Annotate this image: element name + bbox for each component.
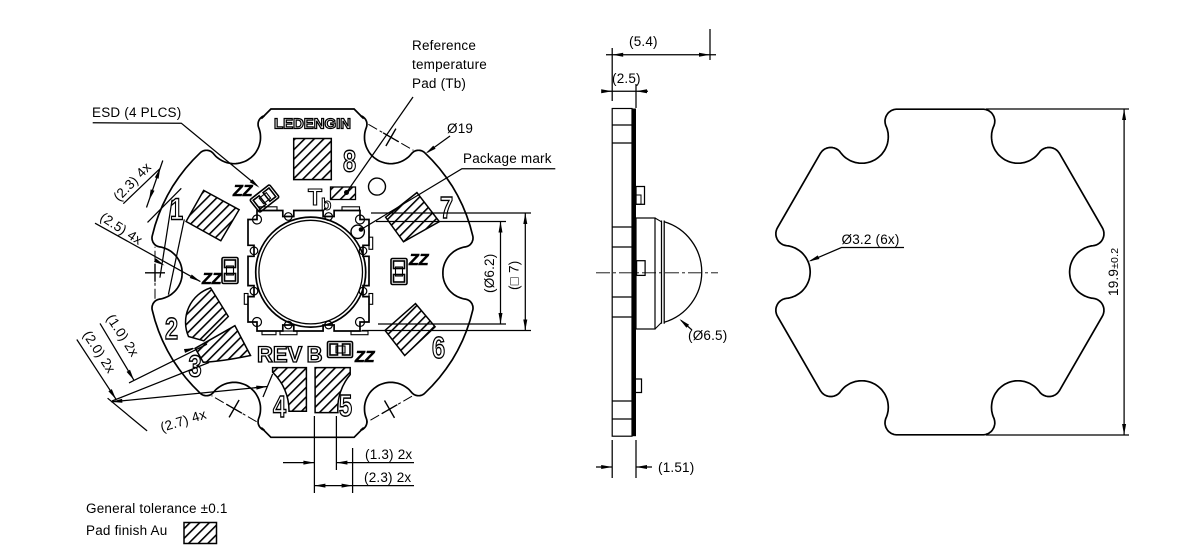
svg-text:ESD (4 PLCS): ESD (4 PLCS) [92,105,181,120]
svg-text:6: 6 [432,330,445,365]
svg-text:Package mark: Package mark [463,151,552,166]
svg-text:Pad finish Au: Pad finish Au [86,523,167,538]
svg-text:(1.3) 2x: (1.3) 2x [365,447,412,462]
svg-text:ZZ: ZZ [354,349,376,366]
svg-text:19.9±0.2: 19.9±0.2 [1106,248,1121,296]
svg-text:ZZ: ZZ [408,252,430,269]
svg-text:Pad (Tb): Pad (Tb) [412,76,466,91]
svg-text:REV B: REV B [257,342,323,367]
svg-text:General tolerance ±0.1: General tolerance ±0.1 [86,501,228,516]
svg-text:(□ 7): (□ 7) [507,261,522,290]
svg-text:Ø3.2 (6x): Ø3.2 (6x) [842,232,900,247]
svg-text:T: T [308,184,322,210]
svg-text:LEDENGIN: LEDENGIN [274,116,351,133]
svg-text:b: b [321,195,331,214]
svg-text:2: 2 [165,311,178,346]
svg-text:7: 7 [440,190,453,225]
svg-text:1: 1 [170,191,183,226]
svg-text:(Ø6.2): (Ø6.2) [482,254,497,293]
svg-text:(2.5): (2.5) [612,71,641,86]
svg-text:4: 4 [273,389,287,424]
svg-text:ZZ: ZZ [201,271,223,288]
svg-text:5: 5 [339,388,352,423]
svg-text:temperature: temperature [412,57,487,72]
svg-text:8: 8 [343,143,356,178]
svg-text:(Ø6.5): (Ø6.5) [688,328,727,343]
svg-text:Reference: Reference [412,38,476,53]
svg-text:(2.3) 2x: (2.3) 2x [364,470,411,485]
svg-text:ZZ: ZZ [232,183,254,200]
svg-text:Ø19: Ø19 [447,121,473,136]
svg-text:(1.51): (1.51) [658,460,694,475]
svg-text:(5.4): (5.4) [629,34,658,49]
